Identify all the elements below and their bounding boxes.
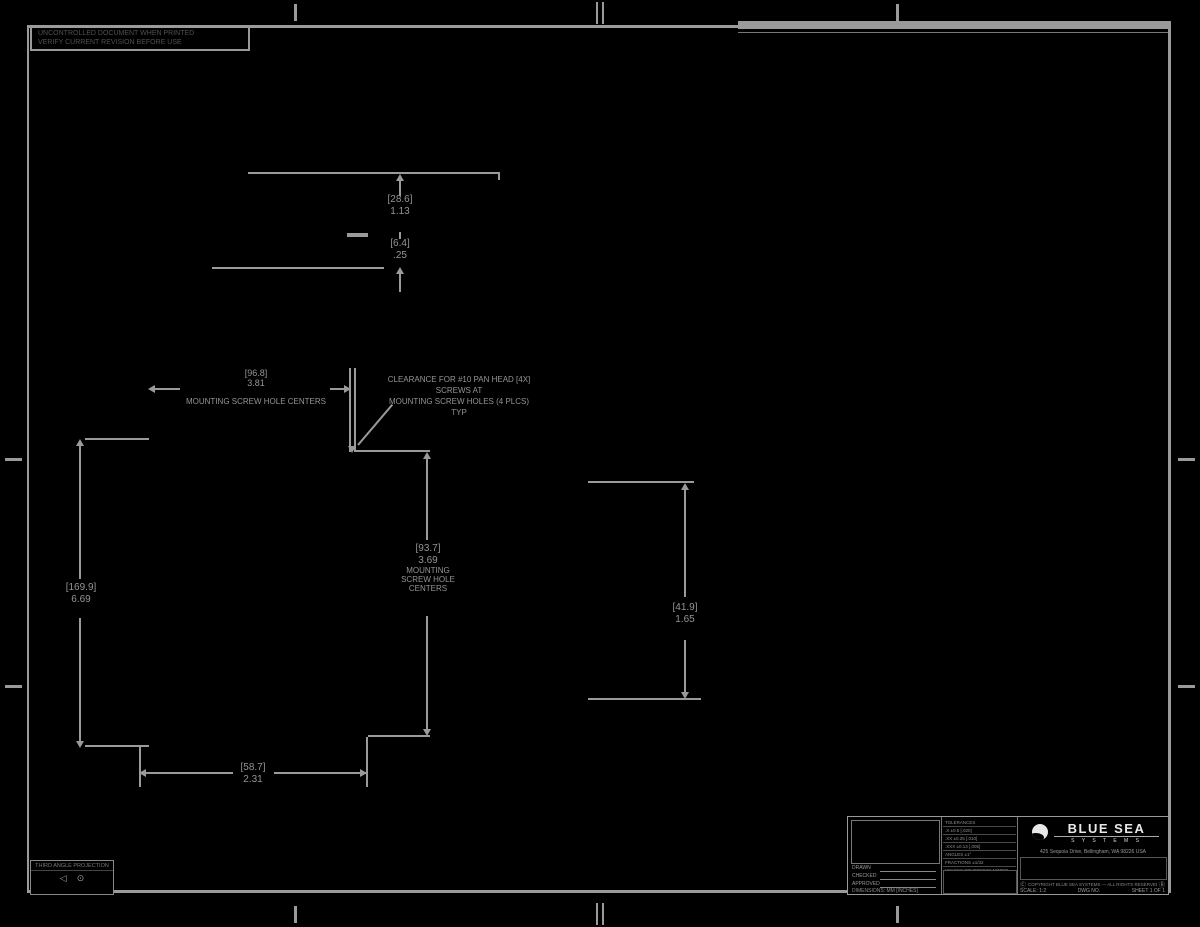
mounting-callout: CLEARANCE FOR #10 PAN HEAD [4X] SCREWS A… — [380, 374, 538, 418]
plan-hdim-bottom-seg2 — [274, 772, 366, 774]
side-dim: [41.9] 1.65 — [660, 602, 710, 625]
control-stamp: UNCONTROLLED DOCUMENT WHEN PRINTED VERIF… — [30, 28, 250, 51]
detail-dim-a-in: 1.13 — [370, 206, 430, 218]
zone-tick-bottom-center-a — [596, 903, 598, 925]
drawing-title-bar — [1020, 857, 1167, 880]
plan-ext-top-right — [355, 450, 430, 452]
plan-dim-center: [93.7] 3.69 MOUNTING SCREW HOLE CENTERS — [396, 543, 460, 594]
tolerance-row: .XX ±0.25 [.010] — [943, 835, 1016, 843]
field-approved-label: APPROVED — [852, 881, 880, 887]
callout-line-3: MOUNTING SCREW HOLES (4 PLCS) — [380, 396, 538, 407]
plan-dim-bottom-in: 2.31 — [228, 774, 278, 786]
detail-dim-a: [28.6] 1.13 — [370, 194, 430, 217]
detail-edge-bottom — [212, 267, 384, 269]
plan-ext-bottom-right — [368, 735, 430, 737]
zone-tick-top-center-b — [602, 2, 604, 24]
side-dim-mm: [41.9] — [660, 602, 710, 614]
detail-dim-line-seg3 — [399, 271, 401, 292]
plan-vdim-left-seg2 — [79, 618, 81, 746]
detail-dim-a-mm: [28.6] — [370, 194, 430, 206]
zone-tick-right-2 — [1178, 685, 1195, 688]
projection-symbol-cone: ◁ — [60, 871, 67, 885]
border-top-thick-bar — [738, 21, 1170, 29]
zone-tick-bottom-1 — [294, 906, 297, 923]
tolerance-row: FRACTIONS ±1/32 — [943, 859, 1016, 867]
tolerance-row: .X ±0.5 [.020] — [943, 827, 1016, 835]
notes-box — [851, 820, 940, 864]
side-dim-in: 1.65 — [660, 614, 710, 626]
callout-line-2: SCREWS AT — [380, 385, 538, 396]
sheet-number: SHEET 1 OF 1 — [1132, 888, 1165, 894]
side-vdim-arrow-bottom — [681, 692, 689, 699]
copyright-row: Ⓒ COPYRIGHT BLUE SEA SYSTEMS — ALL RIGHT… — [1020, 880, 1165, 888]
plan-dim-center-l4: SCREW HOLE — [396, 575, 460, 584]
plan-vdim-left-arrow-bottom — [76, 741, 84, 748]
plan-dim-left-mm: [169.9] — [56, 582, 106, 594]
projection-symbol-circle: ⊙ — [77, 871, 85, 885]
plan-dim-top-mm: [96.8] — [234, 368, 278, 378]
field-drawn-line — [880, 871, 936, 872]
title-block-divider-1 — [941, 817, 942, 894]
plan-hdim-bottom-seg1 — [141, 772, 233, 774]
plan-dim-bottom-mm: [58.7] — [228, 762, 278, 774]
border-top-inner — [738, 32, 1170, 33]
title-block-bottom-row: SCALE: 1:2 DWG NO. SHEET 1 OF 1 — [1020, 888, 1165, 894]
field-checked-label: CHECKED — [852, 873, 876, 879]
plan-dim-bottom: [58.7] 2.31 — [228, 762, 278, 785]
stamp-line-2: VERIFY CURRENT REVISION BEFORE USE — [38, 38, 244, 47]
plan-hdim-bottom-arrow-left — [139, 769, 146, 777]
field-checked: CHECKED — [852, 873, 876, 881]
zone-tick-bottom-2 — [896, 906, 899, 923]
plan-vconn-bottom-right — [366, 737, 368, 787]
callout-line-1: CLEARANCE FOR #10 PAN HEAD [4X] — [380, 374, 538, 385]
detail-edge-top-end-tick — [498, 172, 500, 180]
callout-line-4: TYP — [380, 407, 538, 418]
field-drawn: DRAWN — [852, 865, 871, 873]
company-address: 425 Sequoia Drive, Bellingham, WA 98226 … — [1020, 849, 1166, 855]
copyright-text: COPYRIGHT BLUE SEA SYSTEMS — ALL RIGHTS … — [1028, 882, 1157, 887]
plan-dim-top: [96.8] 3.81 — [234, 368, 278, 389]
detail-dim-b-mm: [6.4] — [370, 238, 430, 250]
projection-box: THIRD ANGLE PROJECTION ◁ ⊙ — [30, 860, 114, 895]
zone-tick-top-1 — [294, 4, 297, 21]
plan-ext-double-b — [354, 368, 356, 452]
detail-edge-top — [248, 172, 500, 174]
field-drawn-label: DRAWN — [852, 865, 871, 871]
plan-corner-arrowhead — [348, 446, 356, 453]
drawing-sheet: UNCONTROLLED DOCUMENT WHEN PRINTED VERIF… — [0, 0, 1200, 927]
side-vdim-seg1 — [684, 485, 686, 597]
tolerance-row: ANGLES ±1° — [943, 851, 1016, 859]
tolerance-row: .XXX ±0.13 [.005] — [943, 843, 1016, 851]
field-dimensions-note: DIMENSIONS: MM [INCHES] — [852, 888, 918, 896]
brand-sub: S Y S T E M S — [1054, 836, 1159, 844]
plan-dim-center-l3: MOUNTING — [396, 566, 460, 575]
scale-value: SCALE: 1:2 — [1020, 888, 1046, 894]
brand-row: BLUE SEA S Y S T E M S — [1024, 820, 1164, 847]
plan-vdim-right-arrow-top — [423, 452, 431, 459]
plan-dim-top-note: MOUNTING SCREW HOLE CENTERS — [172, 397, 340, 406]
dwg-no-label: DWG NO. — [1078, 888, 1101, 894]
stamp-line-1: UNCONTROLLED DOCUMENT WHEN PRINTED — [38, 29, 244, 38]
border-right — [1168, 21, 1171, 893]
plan-topdim-arrow-left — [148, 385, 155, 393]
projection-label: THIRD ANGLE PROJECTION — [31, 863, 113, 871]
side-vdim-seg2 — [684, 640, 686, 694]
plan-vdim-right-seg1 — [426, 454, 428, 540]
detail-dim-b-in: .25 — [370, 250, 430, 262]
title-block: DRAWN CHECKED APPROVED DIMENSIONS: MM [I… — [847, 816, 1169, 895]
plan-topdim-seg-left — [152, 388, 180, 390]
title-block-divider-2 — [1017, 817, 1018, 894]
plan-vdim-left-arrow-top — [76, 439, 84, 446]
detail-dim-b: [6.4] .25 — [370, 238, 430, 261]
plan-dim-left: [169.9] 6.69 — [56, 582, 106, 605]
border-left — [27, 25, 29, 893]
zone-tick-bottom-center-b — [602, 903, 604, 925]
tolerance-table: TOLERANCES .X ±0.5 [.020] .XX ±0.25 [.01… — [943, 819, 1016, 870]
plan-vdim-right-seg2 — [426, 616, 428, 734]
detail-arrowhead-top — [396, 174, 404, 181]
brand-name: BLUE SEA — [1054, 821, 1159, 836]
side-ext-top — [588, 481, 694, 483]
detail-arrowhead-bottom — [396, 267, 404, 274]
plan-dim-center-l5: CENTERS — [396, 584, 460, 593]
zone-tick-top-2 — [896, 4, 899, 21]
material-box — [943, 870, 1017, 894]
side-vdim-arrow-top — [681, 483, 689, 490]
zone-tick-left-2 — [5, 685, 22, 688]
detail-leader-dash — [347, 233, 368, 237]
plan-ext-top-left — [85, 438, 149, 440]
blue-sea-wave-icon — [1032, 824, 1048, 840]
plan-dim-center-mm: [93.7] — [396, 543, 460, 555]
plan-ext-double-a — [349, 368, 351, 452]
zone-tick-right-1 — [1178, 458, 1195, 461]
zone-tick-left-1 — [5, 458, 22, 461]
zone-tick-top-center-a — [596, 2, 598, 24]
field-checked-line — [880, 879, 936, 880]
plan-dim-top-in: 3.81 — [234, 378, 278, 388]
plan-dim-center-in: 3.69 — [396, 555, 460, 567]
plan-vdim-left-seg1 — [79, 441, 81, 579]
plan-dim-left-in: 6.69 — [56, 594, 106, 606]
plan-vconn-bottom-left — [139, 747, 141, 787]
tolerance-row: TOLERANCES — [943, 819, 1016, 827]
plan-vdim-right-arrow-bottom — [423, 729, 431, 736]
